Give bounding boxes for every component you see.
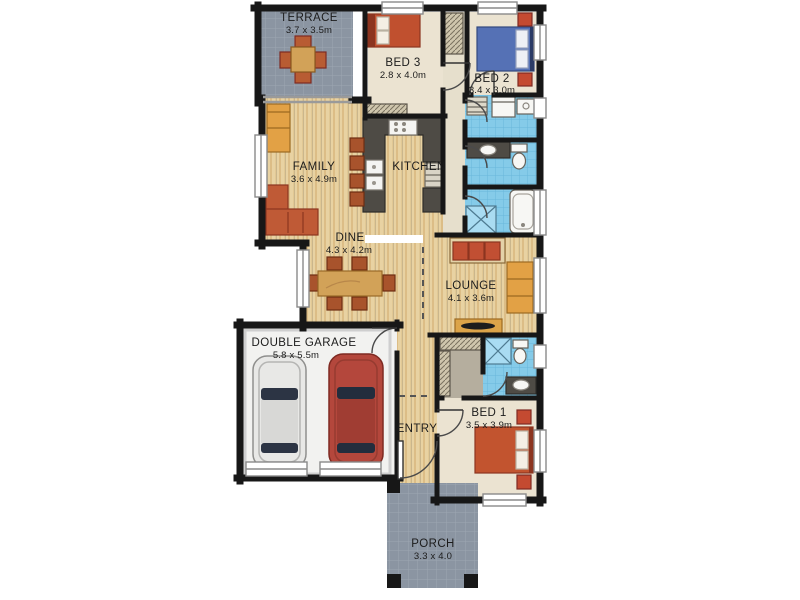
porch-post — [387, 574, 401, 588]
toilet-icon — [513, 340, 528, 348]
dine-dims: 4.3 x 4.2m — [326, 245, 372, 256]
dining-chair — [383, 275, 395, 291]
family-dims: 3.6 x 4.9m — [291, 174, 337, 185]
entry-label: ENTRY — [397, 423, 438, 435]
bed3-pillow — [377, 17, 389, 30]
bar-stool — [350, 192, 364, 206]
porch-dims: 3.3 x 4.0 — [414, 551, 452, 562]
bar-stool — [350, 174, 364, 188]
terrace-chair — [280, 52, 291, 68]
kitchen-bench-return — [423, 188, 443, 212]
dining-table — [318, 271, 382, 296]
bed3-dims: 2.8 x 4.0m — [380, 70, 426, 81]
toilet-icon — [511, 144, 527, 152]
porch-post — [387, 481, 400, 493]
window — [534, 345, 546, 368]
car-windshield — [261, 388, 298, 400]
car-windshield — [337, 387, 375, 399]
window — [534, 98, 546, 118]
toilet-icon — [513, 153, 526, 169]
bed1-headboard — [529, 427, 533, 473]
bed3-pillow — [377, 31, 389, 44]
bed1-side-table — [517, 410, 531, 424]
robe-wardrobe — [439, 351, 450, 396]
bed2-side-table — [518, 73, 532, 86]
bed2-label: BED 2 — [474, 73, 509, 85]
lounge-armchair — [507, 262, 533, 313]
garage-label: DOUBLE GARAGE — [252, 337, 357, 349]
dining-chair — [352, 297, 367, 310]
kitchen-label: KITCHEN — [392, 161, 445, 173]
dining-chair — [327, 297, 342, 310]
car-roof — [261, 400, 298, 443]
bed2-side-table — [518, 13, 532, 26]
terrace-table — [291, 47, 315, 72]
bed3-label: BED 3 — [385, 57, 420, 69]
terrace-chair — [295, 36, 311, 47]
toilet-icon — [514, 349, 526, 364]
bed1-side-table — [517, 475, 531, 489]
dine-label: DINE — [335, 232, 364, 244]
porch-post — [464, 574, 478, 588]
lounge-dims: 4.1 x 3.6m — [448, 293, 494, 304]
washing-machine-icon — [492, 97, 515, 117]
bed1-pillow — [516, 431, 528, 449]
bed1-dims: 3.5 x 3.9m — [466, 420, 512, 431]
ensuite-basin — [513, 380, 529, 390]
bed2-pillow — [516, 50, 528, 68]
family-label: FAMILY — [293, 161, 335, 173]
stove-icon — [389, 120, 417, 135]
bed3-headboard — [368, 14, 375, 47]
dining-chair — [327, 257, 342, 270]
terrace-chair — [315, 52, 326, 68]
terrace-chair — [295, 72, 311, 83]
terrace-label: TERRACE — [280, 12, 338, 24]
garage-dims: 5.8 x 5.5m — [273, 350, 319, 361]
tv-icon — [461, 323, 495, 330]
bed2-pillow — [516, 30, 528, 48]
bed1-pillow — [516, 451, 528, 469]
hall-linen-robe — [444, 13, 463, 54]
terrace-dims: 3.7 x 3.5m — [286, 25, 332, 36]
front-door — [398, 441, 403, 479]
bar-stool — [350, 138, 364, 152]
robe-wardrobe — [440, 337, 481, 350]
floor-plan-page: TERRACE 3.7 x 3.5m BED 3 2.8 x 4.0m BED … — [0, 0, 800, 600]
dining-chair — [352, 257, 367, 270]
bar-stool — [350, 156, 364, 170]
bed2-dims: 3.4 x 3.0m — [469, 85, 515, 96]
bed1-label: BED 1 — [471, 407, 506, 419]
laundry-tub — [517, 99, 535, 114]
floor-plan: TERRACE 3.7 x 3.5m BED 3 2.8 x 4.0m BED … — [0, 0, 800, 600]
family-sofa-l-shape — [266, 209, 318, 235]
bed3-bed — [368, 14, 420, 47]
porch-label: PORCH — [411, 538, 455, 550]
car-roof — [337, 399, 375, 443]
lounge-label: LOUNGE — [446, 280, 497, 292]
